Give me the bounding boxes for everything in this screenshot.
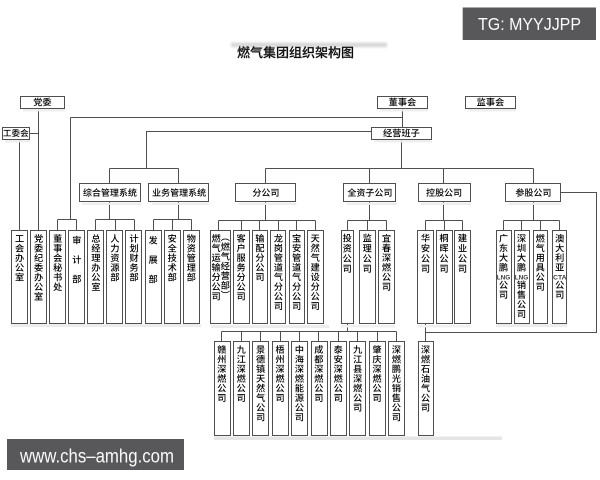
svg-text:LNG: LNG [515, 274, 529, 281]
svg-text:www.chs–amhg.com: www.chs–amhg.com [19, 447, 174, 468]
svg-text:CTA: CTA [553, 274, 567, 281]
svg-text:LNG: LNG [497, 274, 511, 281]
svg-text:TG: MYYJJPP: TG: MYYJJPP [478, 14, 581, 34]
